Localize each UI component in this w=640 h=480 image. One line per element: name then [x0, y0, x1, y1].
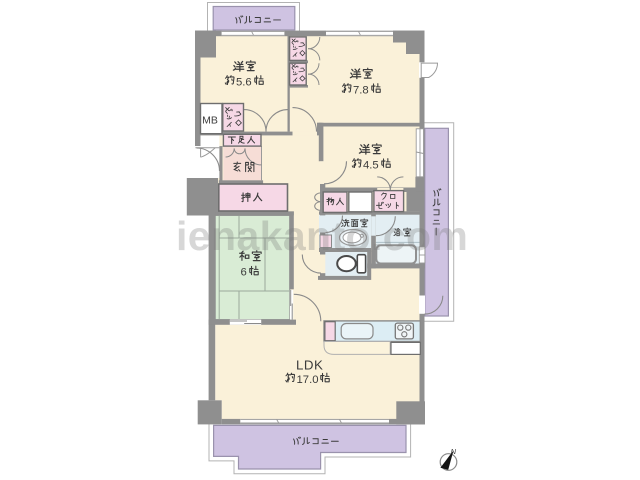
- svg-text:LDK: LDK: [296, 358, 323, 373]
- svg-text:17.0: 17.0: [297, 374, 319, 386]
- svg-text:6: 6: [241, 267, 247, 279]
- svg-text:5.6: 5.6: [236, 76, 252, 88]
- svg-text:4.5: 4.5: [363, 159, 379, 171]
- svg-text:MB: MB: [202, 115, 218, 127]
- svg-text:N: N: [451, 447, 457, 456]
- svg-text:ienakanto.com: ienakanto.com: [176, 213, 468, 259]
- svg-text:7.8: 7.8: [353, 84, 369, 96]
